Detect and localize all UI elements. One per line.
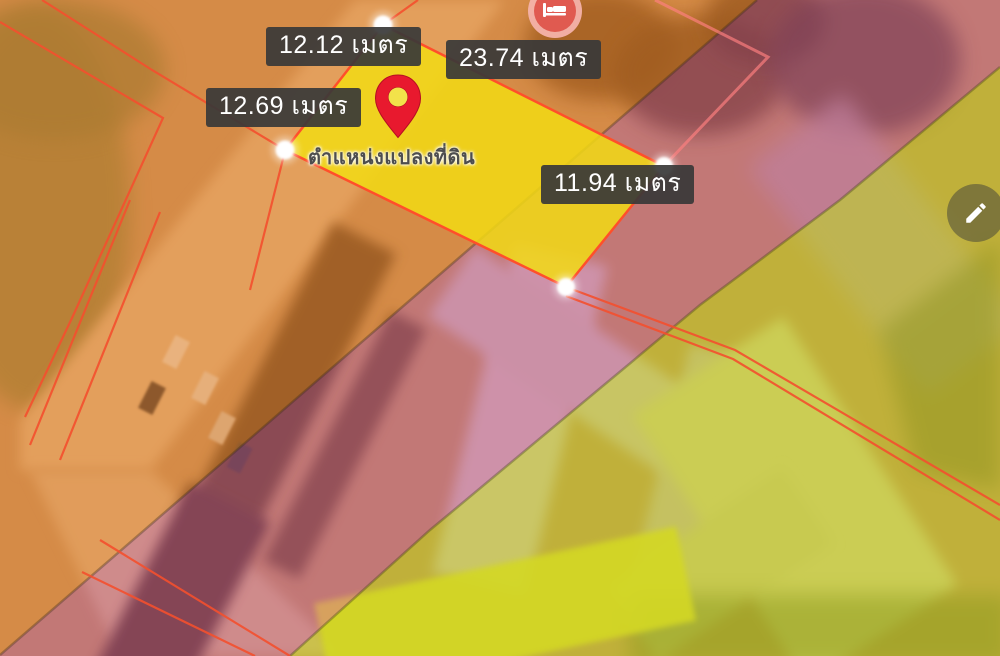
pin-hole [389,88,408,107]
measurement-label: 12.12 เมตร [266,27,421,66]
parcel-caption: ตำแหน่งแปลงที่ดิน [308,141,475,173]
vertex-handle-dot[interactable] [271,136,299,164]
measurement-label: 23.74 เมตร [446,40,601,79]
pencil-icon [963,200,989,226]
measurement-label: 11.94 เมตร [541,165,694,204]
map-canvas[interactable]: 12.12 เมตร 23.74 เมตร 12.69 เมตร 11.94 เ… [0,0,1000,656]
measurement-label: 12.69 เมตร [206,88,361,127]
vertex-handle-dot[interactable] [553,274,579,300]
location-pin[interactable] [374,74,422,140]
hotel-poi-marker-inner [534,0,576,32]
edit-button[interactable] [947,184,1000,242]
hotel-bed-icon [542,2,568,20]
map-scene [0,0,1000,656]
